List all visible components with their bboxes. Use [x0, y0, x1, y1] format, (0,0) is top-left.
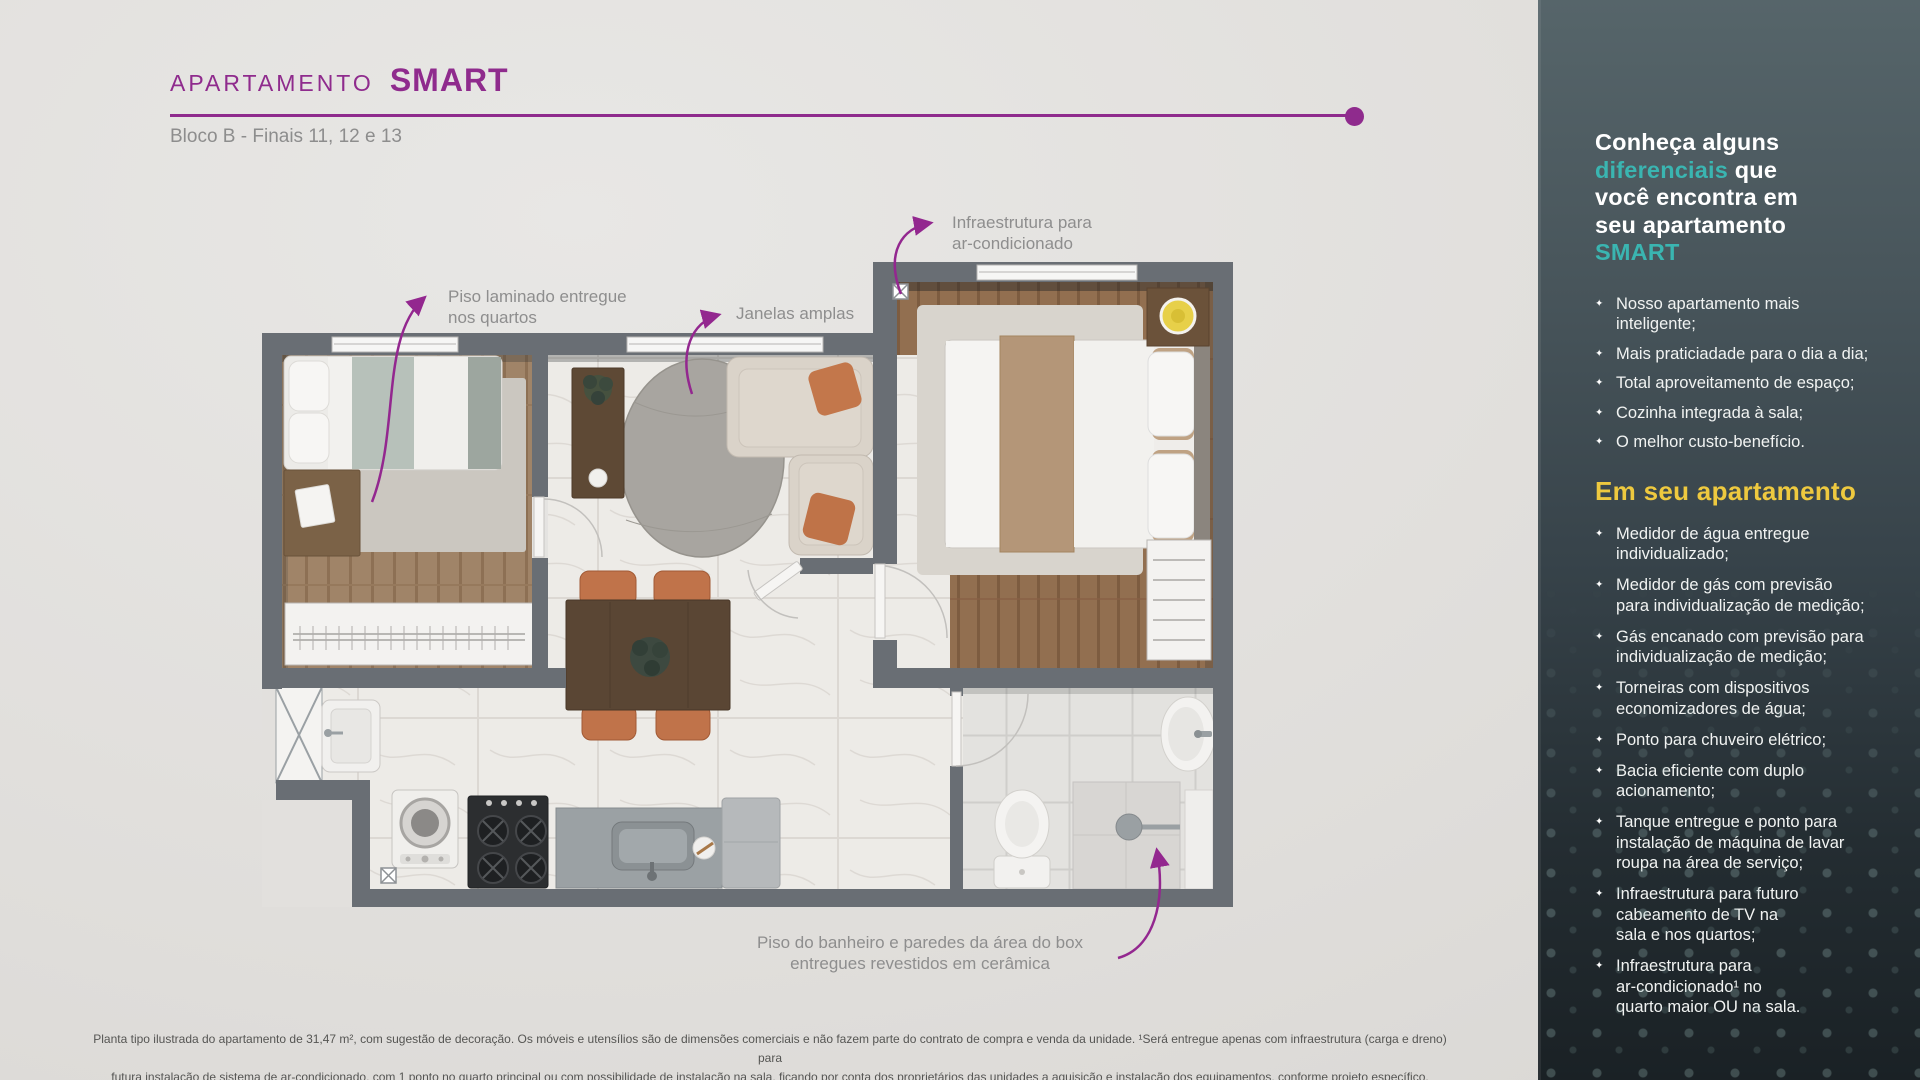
section-title: Em seu apartamento: [1595, 476, 1892, 507]
bedroom2-closet: [1147, 540, 1211, 660]
bedroom1-dresser: [284, 470, 360, 556]
title-dot-icon: [1345, 107, 1364, 126]
diamond-bullet-icon: ✦: [1595, 524, 1607, 565]
drain-point-icon: [381, 868, 396, 883]
list-item: ✦ Gás encanado com previsão para individ…: [1595, 627, 1892, 668]
list-item: ✦ Total aproveitamento de espaço;: [1595, 373, 1892, 394]
list-item: ✦ Tanque entregue e ponto para instalaçã…: [1595, 812, 1892, 874]
page-title: APARTAMENTO SMART: [170, 62, 509, 99]
list-item: ✦ Infraestrutura para futuro cabeamento …: [1595, 884, 1892, 946]
annotation-piso-banheiro: Piso do banheiro e paredes da área do bo…: [710, 932, 1130, 974]
toilet: [994, 790, 1050, 888]
apartment-features-list: ✦ Medidor de água entregue individualiza…: [1595, 524, 1892, 1018]
disclaimer-line1: Planta tipo ilustrada do apartamento de …: [93, 1032, 1446, 1065]
laundry-tank: [322, 700, 380, 772]
page: APARTAMENTO SMART Bloco B - Finais 11, 1…: [0, 0, 1920, 1080]
list-item: ✦ Torneiras com dispositivos economizado…: [1595, 678, 1892, 719]
list-item: ✦ Mais praticiadade para o dia a dia;: [1595, 344, 1892, 365]
nightstand: [1147, 288, 1209, 346]
window: [977, 265, 1137, 280]
differentials-list: ✦ Nosso apartamento mais inteligente; ✦ …: [1595, 294, 1892, 453]
title-subtitle: Bloco B - Finais 11, 12 e 13: [170, 126, 402, 148]
fridge: [722, 798, 780, 888]
annotation-janelas: Janelas amplas: [736, 303, 854, 324]
diamond-bullet-icon: ✦: [1595, 294, 1607, 335]
shower: [1073, 782, 1180, 889]
list-item: ✦ Medidor de água entregue individualiza…: [1595, 524, 1892, 565]
diamond-bullet-icon: ✦: [1595, 730, 1607, 751]
bathroom-sink: [1161, 697, 1215, 771]
diamond-bullet-icon: ✦: [1595, 813, 1607, 875]
annotation-infra-ac: Infraestrutura para ar-condicionado: [952, 212, 1092, 254]
list-item: ✦ Bacia eficiente com duplo acionamento;: [1595, 761, 1892, 802]
disclaimer: Planta tipo ilustrada do apartamento de …: [90, 1030, 1450, 1080]
diamond-bullet-icon: ✦: [1595, 957, 1607, 1019]
diamond-bullet-icon: ✦: [1595, 761, 1607, 802]
list-item: ✦ Infraestrutura para ar-condicionado¹ n…: [1595, 956, 1892, 1018]
list-item: ✦ Cozinha integrada à sala;: [1595, 403, 1892, 424]
list-item: ✦ Medidor de gás com previsão para indiv…: [1595, 575, 1892, 616]
diamond-bullet-icon: ✦: [1595, 344, 1607, 365]
list-item: ✦ O melhor custo-benefício.: [1595, 432, 1892, 453]
washing-machine: [392, 790, 458, 868]
window: [332, 337, 458, 352]
title-prefix: APARTAMENTO: [170, 70, 374, 97]
sidebar-heading: Conheça alguns diferenciais que você enc…: [1595, 74, 1892, 267]
bedroom1-closet: [285, 603, 533, 665]
service-shaft: [276, 687, 322, 783]
diamond-bullet-icon: ✦: [1595, 627, 1607, 668]
list-item: ✦ Ponto para chuveiro elétrico;: [1595, 730, 1892, 751]
diamond-bullet-icon: ✦: [1595, 374, 1607, 395]
title-name: SMART: [390, 62, 509, 99]
counter-sink: [556, 808, 722, 888]
shower-bench: [1185, 790, 1213, 889]
window: [627, 337, 823, 352]
diamond-bullet-icon: ✦: [1595, 403, 1607, 424]
bedroom2-bed: [945, 336, 1210, 552]
list-item: ✦ Nosso apartamento mais inteligente;: [1595, 294, 1892, 335]
title-rule: [170, 114, 1346, 117]
diamond-bullet-icon: ✦: [1595, 576, 1607, 617]
sideboard: [572, 368, 624, 498]
diamond-bullet-icon: ✦: [1595, 433, 1607, 454]
diamond-bullet-icon: ✦: [1595, 885, 1607, 947]
disclaimer-line2: futura instalação de sistema de ar-condi…: [111, 1070, 1428, 1080]
diamond-bullet-icon: ✦: [1595, 679, 1607, 720]
stove: [468, 796, 548, 888]
annotation-piso-laminado: Piso laminado entregue nos quartos: [448, 286, 627, 328]
sidebar: Conheça alguns diferenciais que você enc…: [1538, 0, 1920, 1080]
bedroom1-furniture: [284, 356, 533, 665]
